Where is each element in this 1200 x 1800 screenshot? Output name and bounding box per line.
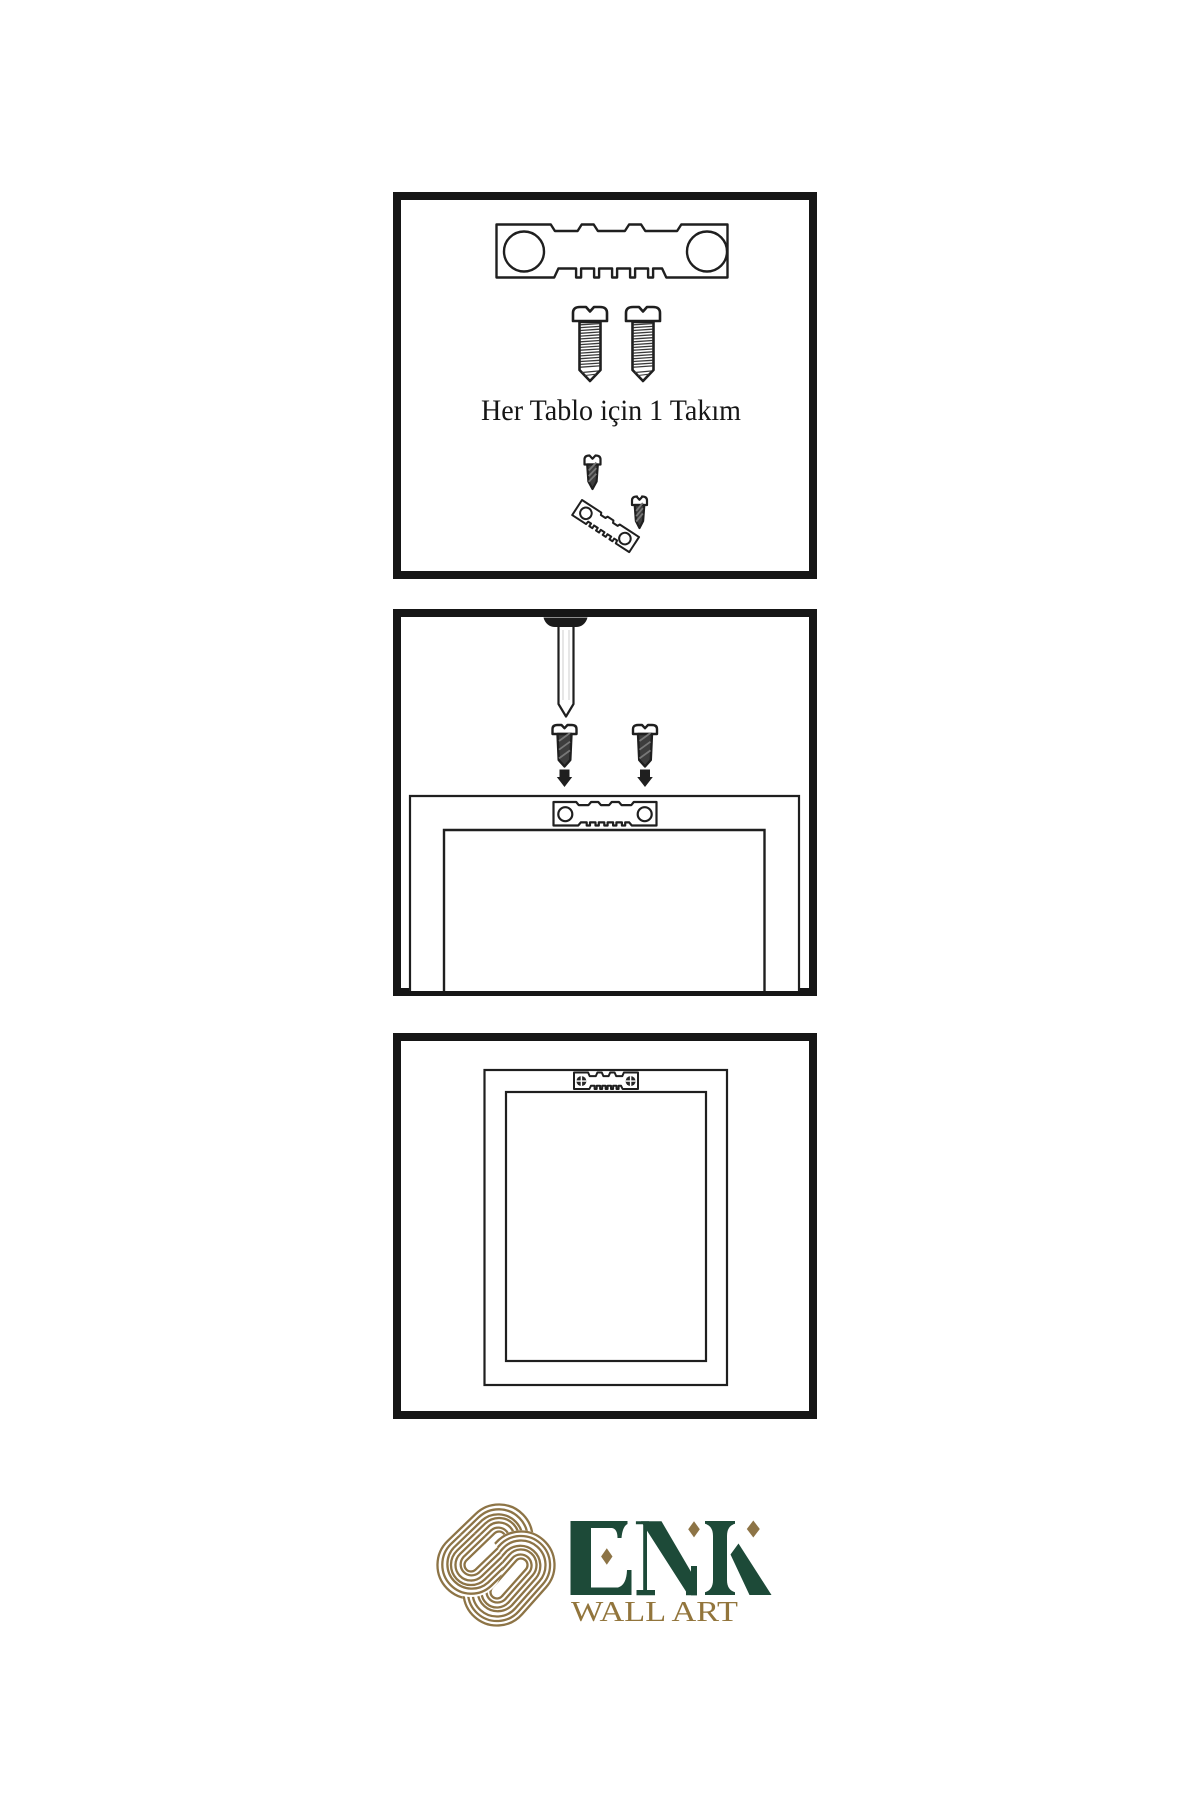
svg-text:Her Tablo için 1 Takım: Her Tablo için 1 Takım xyxy=(481,394,741,427)
svg-text:WALL ART: WALL ART xyxy=(571,1596,738,1628)
